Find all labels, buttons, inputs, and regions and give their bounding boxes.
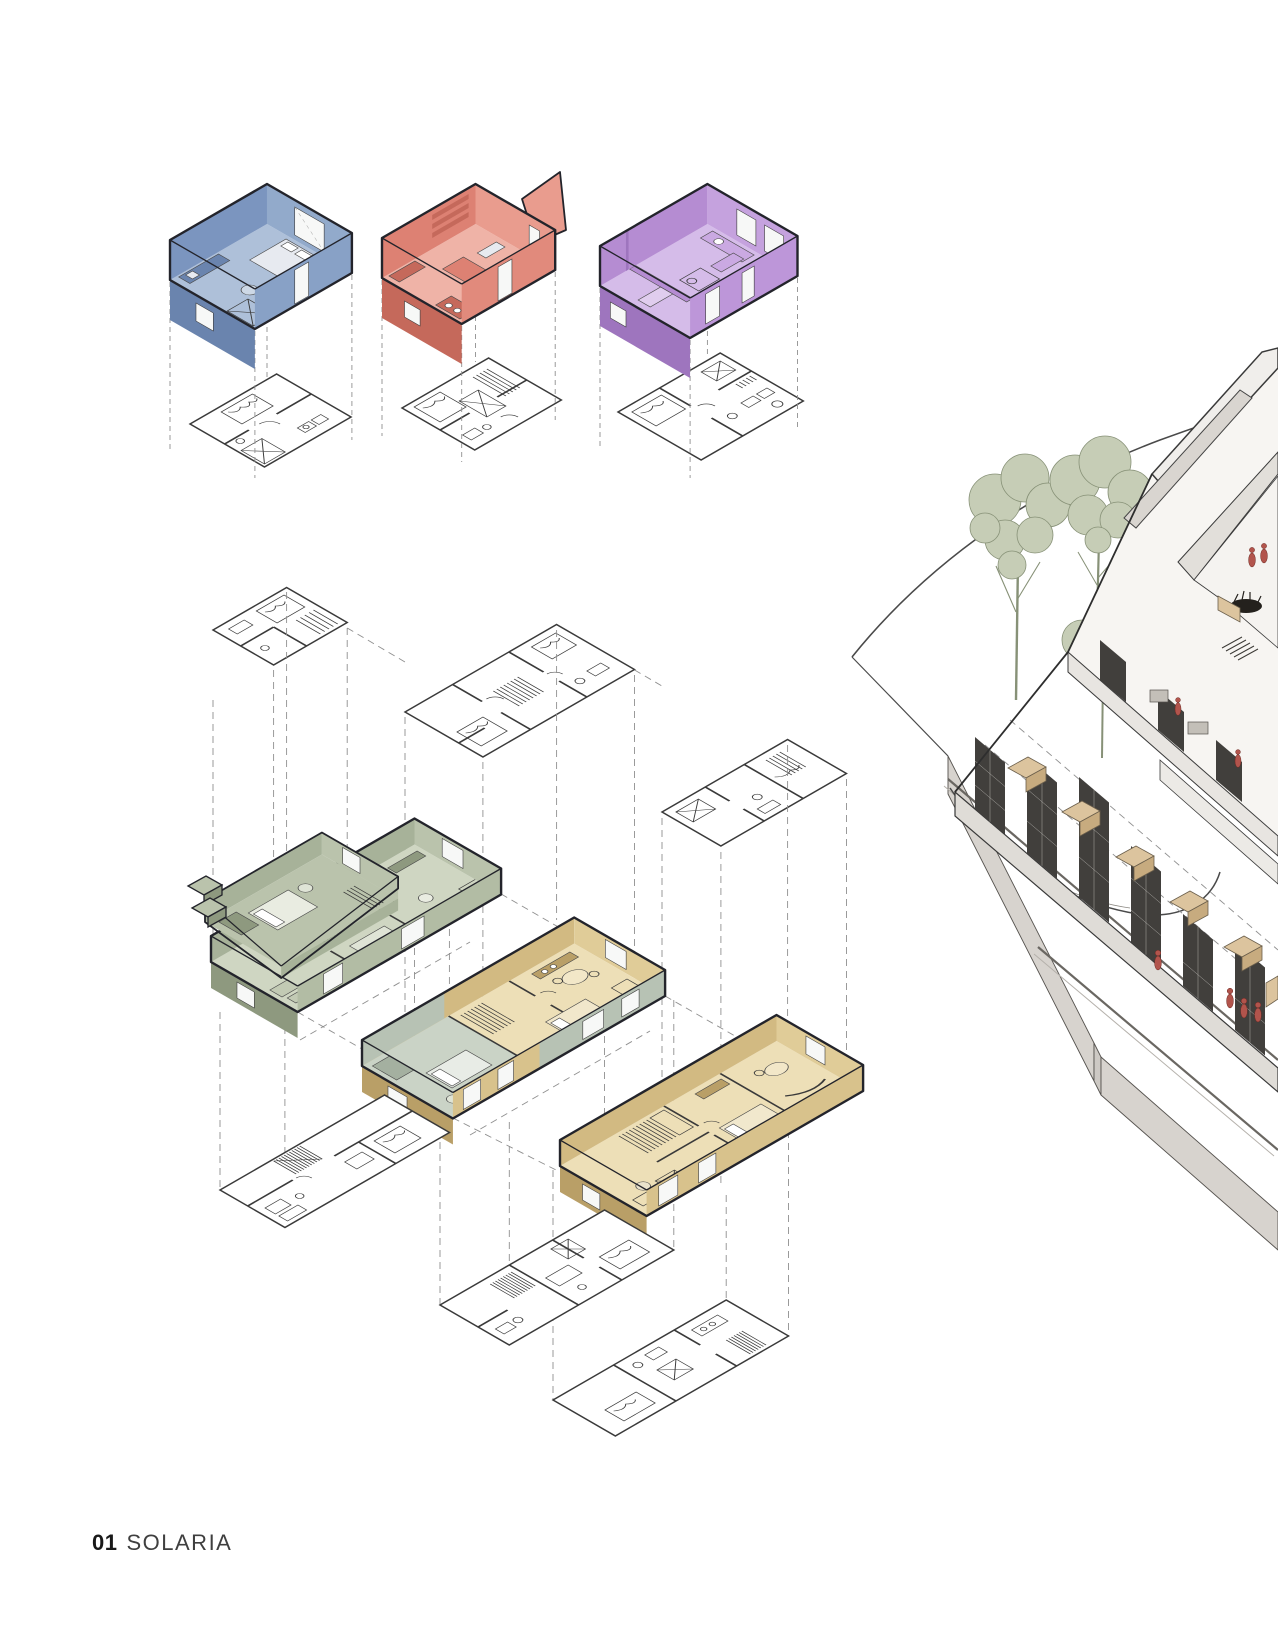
page-number: 01: [92, 1530, 117, 1555]
portfolio-page: 01SOLARIA: [0, 0, 1278, 1650]
axon-plan-bottom-1: [220, 1095, 449, 1228]
page-footer: 01SOLARIA: [92, 1530, 232, 1556]
figure: [1175, 698, 1181, 716]
figure: [1155, 950, 1162, 970]
floor-plan-outline: [618, 353, 803, 460]
figure: [1235, 750, 1241, 768]
figure: [1249, 547, 1256, 567]
axon-plan-top-3: [662, 740, 846, 847]
floor-plan-outline: [402, 358, 561, 450]
unit-axon-purple: [600, 184, 798, 378]
plan-under-purple-unit: [618, 353, 803, 460]
axon-plan-bottom-3: [553, 1300, 789, 1436]
figure: [1255, 1002, 1262, 1022]
plan-under-red-unit: [402, 358, 561, 450]
axon-plan-top-2: [405, 625, 634, 758]
exploded-axonometric-stack: [188, 588, 863, 1437]
plan-under-blue-unit: [190, 374, 351, 467]
unit-axonometric-studies: [170, 172, 803, 478]
axon-plan-top-1: [213, 588, 347, 666]
figure: [1227, 988, 1234, 1008]
figure: [1241, 998, 1248, 1018]
unit-axon-blue: [170, 184, 352, 369]
portfolio-page-canvas: [0, 0, 1278, 1650]
unit-axon-red: [382, 172, 566, 364]
unit-axon-tan-low: [560, 1015, 863, 1242]
project-title: SOLARIA: [126, 1530, 232, 1555]
axon-plan-bottom-2: [440, 1210, 674, 1345]
site-axonometric-render: [852, 348, 1278, 1250]
floor-plan-outline: [190, 374, 351, 467]
figure: [1261, 543, 1268, 563]
